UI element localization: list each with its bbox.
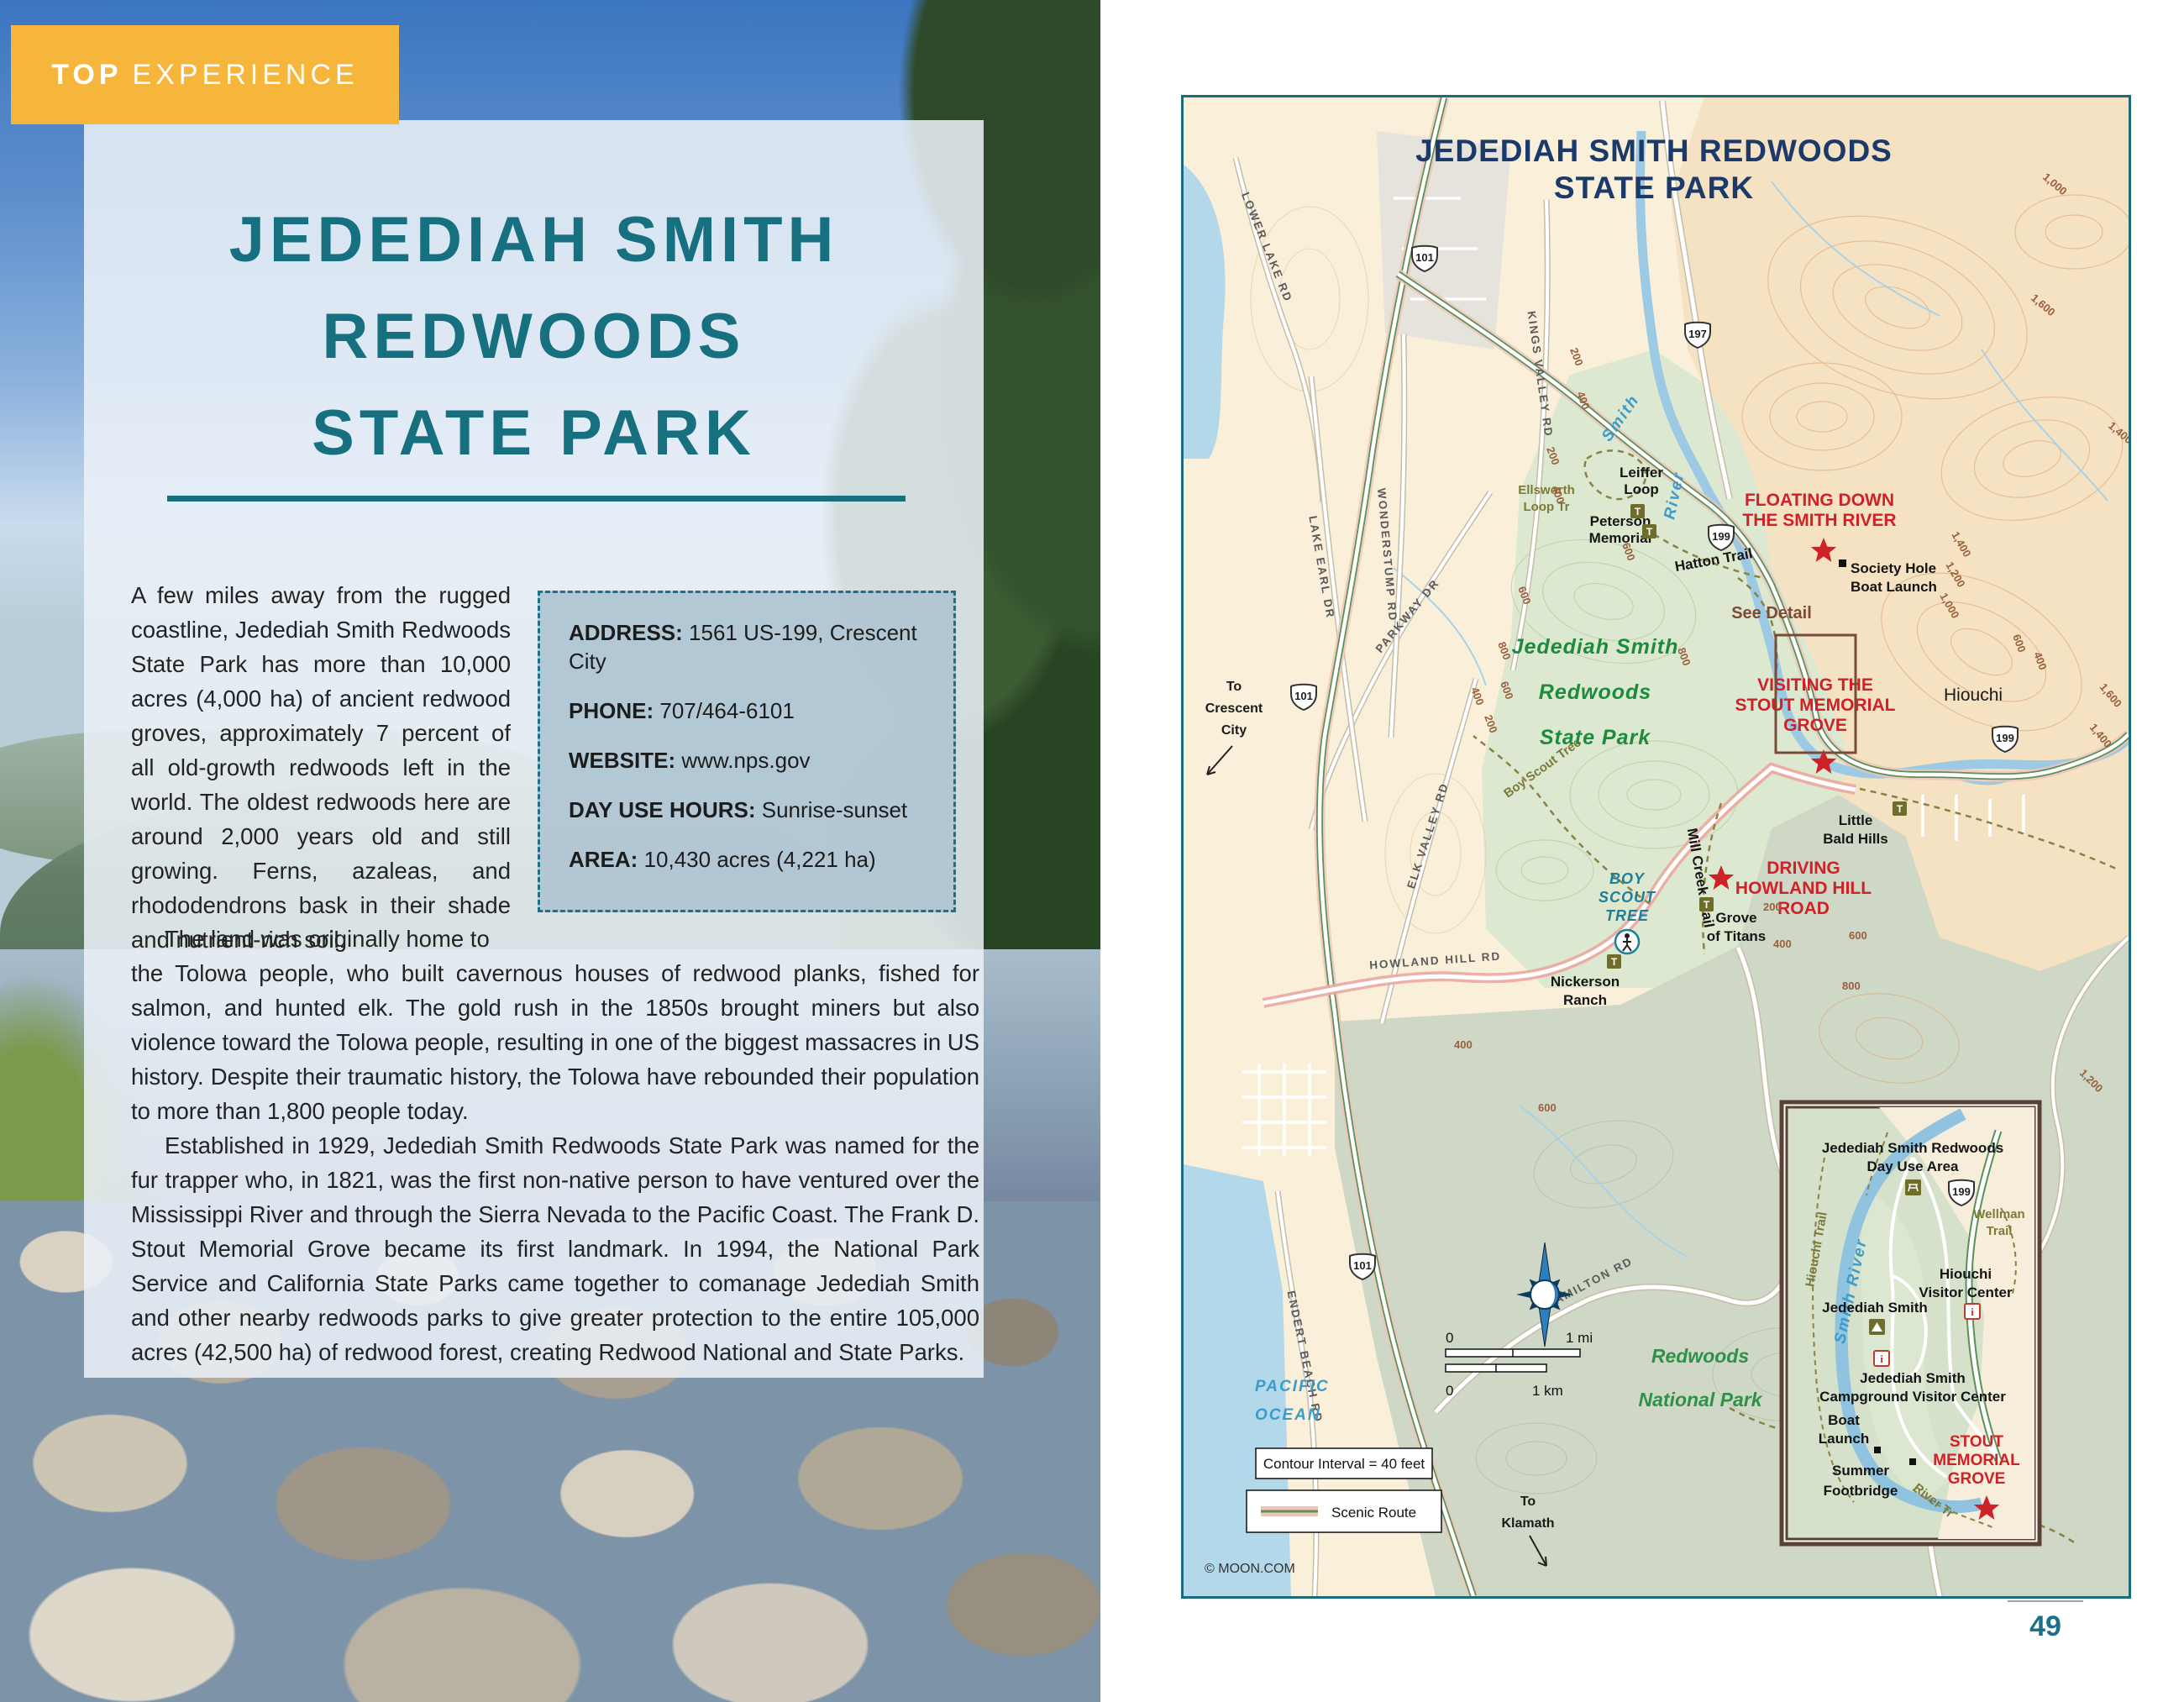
trailhead-icon: T xyxy=(1607,954,1621,969)
society-hole-square-icon xyxy=(1839,559,1846,567)
inset-label-hiouchi-vc-1: Hiouchi xyxy=(1940,1266,1992,1282)
svg-text:199: 199 xyxy=(1712,530,1730,543)
map-label-floating-2: THE SMITH RIVER xyxy=(1742,511,1896,530)
page-number-block: 49 xyxy=(2008,1600,2083,1643)
scale-km-1: 1 km xyxy=(1532,1383,1563,1399)
page-number-rule xyxy=(2008,1600,2083,1602)
contour-label: 800 xyxy=(1842,980,1861,992)
inset-label-cgvc-2: Campground Visitor Center xyxy=(1819,1389,2006,1405)
map-label-ellsworth-1: Ellsworth xyxy=(1518,483,1575,497)
article-paragraph-2-lead: The land was originally home to xyxy=(131,922,511,956)
inset-label-hiouchi-vc-2: Visitor Center xyxy=(1919,1284,2013,1300)
page-number: 49 xyxy=(2008,1610,2083,1643)
info-address-label: ADDRESS: xyxy=(569,620,683,645)
map-title-line1: JEDEDIAH SMITH REDWOODS xyxy=(1415,134,1893,168)
info-website-value: www.nps.gov xyxy=(681,748,810,773)
contour-label: 400 xyxy=(1773,938,1792,950)
inset-label-stout-2: MEMORIAL xyxy=(1933,1452,2020,1469)
svg-text:101: 101 xyxy=(1353,1259,1372,1272)
info-phone-label: PHONE: xyxy=(569,698,654,723)
info-area-label: AREA: xyxy=(569,847,638,872)
map-label-rnp-1: Redwoods xyxy=(1651,1345,1749,1367)
inset-boat-square-icon xyxy=(1874,1447,1881,1453)
page-title: JEDEDIAH SMITH REDWOODS STATE PARK xyxy=(84,192,984,481)
page-title-line3: STATE PARK xyxy=(84,385,984,481)
map-label-to-crescent-1: To xyxy=(1226,680,1242,694)
inset-footbridge-square-icon xyxy=(1909,1458,1916,1465)
scale-mi-1: 1 mi xyxy=(1566,1330,1593,1346)
campground-icon xyxy=(1869,1319,1885,1335)
park-map: JEDEDIAH SMITH REDWOODS STATE PARK LOWER… xyxy=(1181,95,2131,1599)
picnic-icon xyxy=(1905,1179,1921,1195)
map-label-hiouchi: Hiouchi xyxy=(1944,686,2003,705)
map-label-park-2: Redwoods xyxy=(1539,680,1651,704)
svg-text:T: T xyxy=(1611,956,1618,968)
map-label-driving-2: HOWLAND HILL xyxy=(1735,879,1872,898)
inset-label-stout-1: STOUT xyxy=(1950,1433,2003,1451)
inset-label-dayuse-2: Day Use Area xyxy=(1867,1158,1960,1174)
scenic-route-label: Scenic Route xyxy=(1331,1505,1416,1521)
top-experience-badge: TOP EXPERIENCE xyxy=(11,25,399,124)
info-icon: i xyxy=(1965,1304,1980,1319)
park-info-box: ADDRESS: 1561 US-199, Crescent City PHON… xyxy=(538,591,956,912)
map-label-society-2: Boat Launch xyxy=(1851,579,1937,595)
contour-interval-box: Contour Interval = 40 feet xyxy=(1256,1448,1432,1479)
svg-text:199: 199 xyxy=(1996,732,2014,744)
map-label-nickerson-2: Ranch xyxy=(1563,992,1607,1008)
trailhead-icon: T xyxy=(1642,524,1656,538)
map-label-grove-1: Grove xyxy=(1715,910,1756,926)
map-label-floating-1: FLOATING DOWN xyxy=(1745,491,1894,510)
map-label-ocean: OCEAN xyxy=(1255,1406,1321,1424)
svg-text:199: 199 xyxy=(1952,1185,1971,1198)
trailhead-icon: T xyxy=(1699,897,1714,911)
inset-label-jed-smith: Jedediah Smith xyxy=(1822,1300,1928,1316)
map-label-driving-1: DRIVING xyxy=(1767,859,1840,878)
svg-text:101: 101 xyxy=(1294,690,1313,702)
page-title-line1: JEDEDIAH SMITH xyxy=(84,192,984,288)
contour-label: 600 xyxy=(1538,1101,1557,1114)
map-title-line2: STATE PARK xyxy=(1554,171,1754,205)
contour-interval-label: Contour Interval = 40 feet xyxy=(1263,1456,1425,1472)
hiker-icon xyxy=(1615,930,1639,953)
svg-text:T: T xyxy=(1646,526,1653,538)
inset-label-summer-2: Footbridge xyxy=(1824,1483,1898,1499)
article-panel: JEDEDIAH SMITH REDWOODS STATE PARK A few… xyxy=(84,120,984,1378)
map-label-to-klamath-2: Klamath xyxy=(1501,1516,1554,1531)
map-label-grove-2: of Titans xyxy=(1707,928,1767,944)
badge-experience: EXPERIENCE xyxy=(133,59,359,92)
map-label-park-3: State Park xyxy=(1540,726,1651,749)
svg-text:T: T xyxy=(1704,899,1710,911)
svg-text:T: T xyxy=(1635,506,1641,517)
info-website: WEBSITE: www.nps.gov xyxy=(569,746,932,775)
map-label-society-1: Society Hole xyxy=(1851,560,1936,576)
map-label-leiffer-2: Loop xyxy=(1624,481,1659,497)
contour-label: 400 xyxy=(1454,1038,1473,1051)
map-label-see-detail: See Detail xyxy=(1731,604,1812,622)
inset-label-summer-1: Summer xyxy=(1832,1463,1889,1479)
info-phone: PHONE: 707/464-6101 xyxy=(569,696,932,725)
contour-label: 600 xyxy=(1849,929,1867,942)
map-label-nickerson-1: Nickerson xyxy=(1551,974,1620,990)
inset-label-cgvc-1: Jedediah Smith xyxy=(1860,1370,1966,1386)
map-label-to-crescent-3: City xyxy=(1221,723,1247,738)
inset-label-boat-2: Launch xyxy=(1819,1431,1869,1447)
inset-label-stout-3: GROVE xyxy=(1948,1470,2006,1488)
map-label-boy-scout-3: TREE xyxy=(1605,907,1649,924)
inset-label-wellman-2: Trail xyxy=(1987,1224,2013,1238)
page-title-line2: REDWOODS xyxy=(84,288,984,385)
inset-map: Jedediah Smith Redwoods Day Use Area 199… xyxy=(1782,1102,2040,1544)
map-label-park-1: Jedediah Smith xyxy=(1512,635,1679,659)
svg-text:i: i xyxy=(1971,1305,1974,1318)
map-canvas: JEDEDIAH SMITH REDWOODS STATE PARK LOWER… xyxy=(1184,97,2129,1596)
info-icon: i xyxy=(1874,1351,1889,1366)
map-label-leiffer-1: Leiffer xyxy=(1620,465,1663,481)
left-page-photo: JEDEDIAH SMITH REDWOODS STATE PARK A few… xyxy=(0,0,1100,1702)
info-hours-label: DAY USE HOURS: xyxy=(569,797,756,822)
article-paragraph-2: the Tolowa people, who built cavernous h… xyxy=(131,956,979,1393)
contour-label: 200 xyxy=(1763,901,1782,913)
title-divider xyxy=(167,496,906,502)
trailhead-icon: T xyxy=(1630,504,1645,518)
scenic-route-legend: Scenic Route xyxy=(1247,1490,1441,1532)
map-label-boy-scout-1: BOY xyxy=(1609,870,1646,887)
map-label-rnp-2: National Park xyxy=(1639,1389,1763,1410)
article-paragraph-1: A few miles away from the rugged coastli… xyxy=(131,578,511,957)
map-label-visiting-3: GROVE xyxy=(1783,716,1847,735)
map-credit: © MOON.COM xyxy=(1205,1562,1295,1576)
map-label-boy-scout-2: SCOUT xyxy=(1599,889,1656,906)
info-phone-value: 707/464-6101 xyxy=(659,698,794,723)
article-paragraph-3: Established in 1929, Jedediah Smith Redw… xyxy=(131,1128,979,1369)
info-area-value: 10,430 acres (4,221 ha) xyxy=(644,847,876,872)
svg-text:197: 197 xyxy=(1688,328,1707,340)
badge-top: TOP xyxy=(51,59,122,92)
info-address: ADDRESS: 1561 US-199, Crescent City xyxy=(569,618,932,675)
info-hours: DAY USE HOURS: Sunrise-sunset xyxy=(569,796,932,824)
map-label-little-bald-2: Bald Hills xyxy=(1823,831,1887,847)
map-label-to-crescent-2: Crescent xyxy=(1205,701,1263,716)
map-label-little-bald-1: Little xyxy=(1839,812,1873,828)
trailhead-icon: T xyxy=(1893,801,1907,816)
inset-label-dayuse-1: Jedediah Smith Redwoods xyxy=(1822,1140,2003,1156)
map-label-to-klamath-1: To xyxy=(1520,1495,1536,1509)
svg-text:101: 101 xyxy=(1415,251,1434,264)
inset-label-boat-1: Boat xyxy=(1828,1412,1860,1428)
map-label-driving-3: ROAD xyxy=(1777,899,1830,918)
info-area: AREA: 10,430 acres (4,221 ha) xyxy=(569,845,932,874)
inset-label-wellman-1: Wellman xyxy=(1973,1207,2024,1221)
map-label-visiting-2: STOUT MEMORIAL xyxy=(1735,696,1896,715)
info-website-label: WEBSITE: xyxy=(569,748,675,773)
svg-text:i: i xyxy=(1880,1353,1883,1365)
article-paragraph-2-rest: the Tolowa people, who built cavernous h… xyxy=(131,960,979,1124)
map-label-pacific: PACIFIC xyxy=(1255,1378,1330,1395)
info-hours-value: Sunrise-sunset xyxy=(762,797,907,822)
scale-km-0: 0 xyxy=(1446,1383,1453,1399)
scale-mi-0: 0 xyxy=(1446,1330,1453,1346)
svg-text:T: T xyxy=(1897,803,1903,815)
